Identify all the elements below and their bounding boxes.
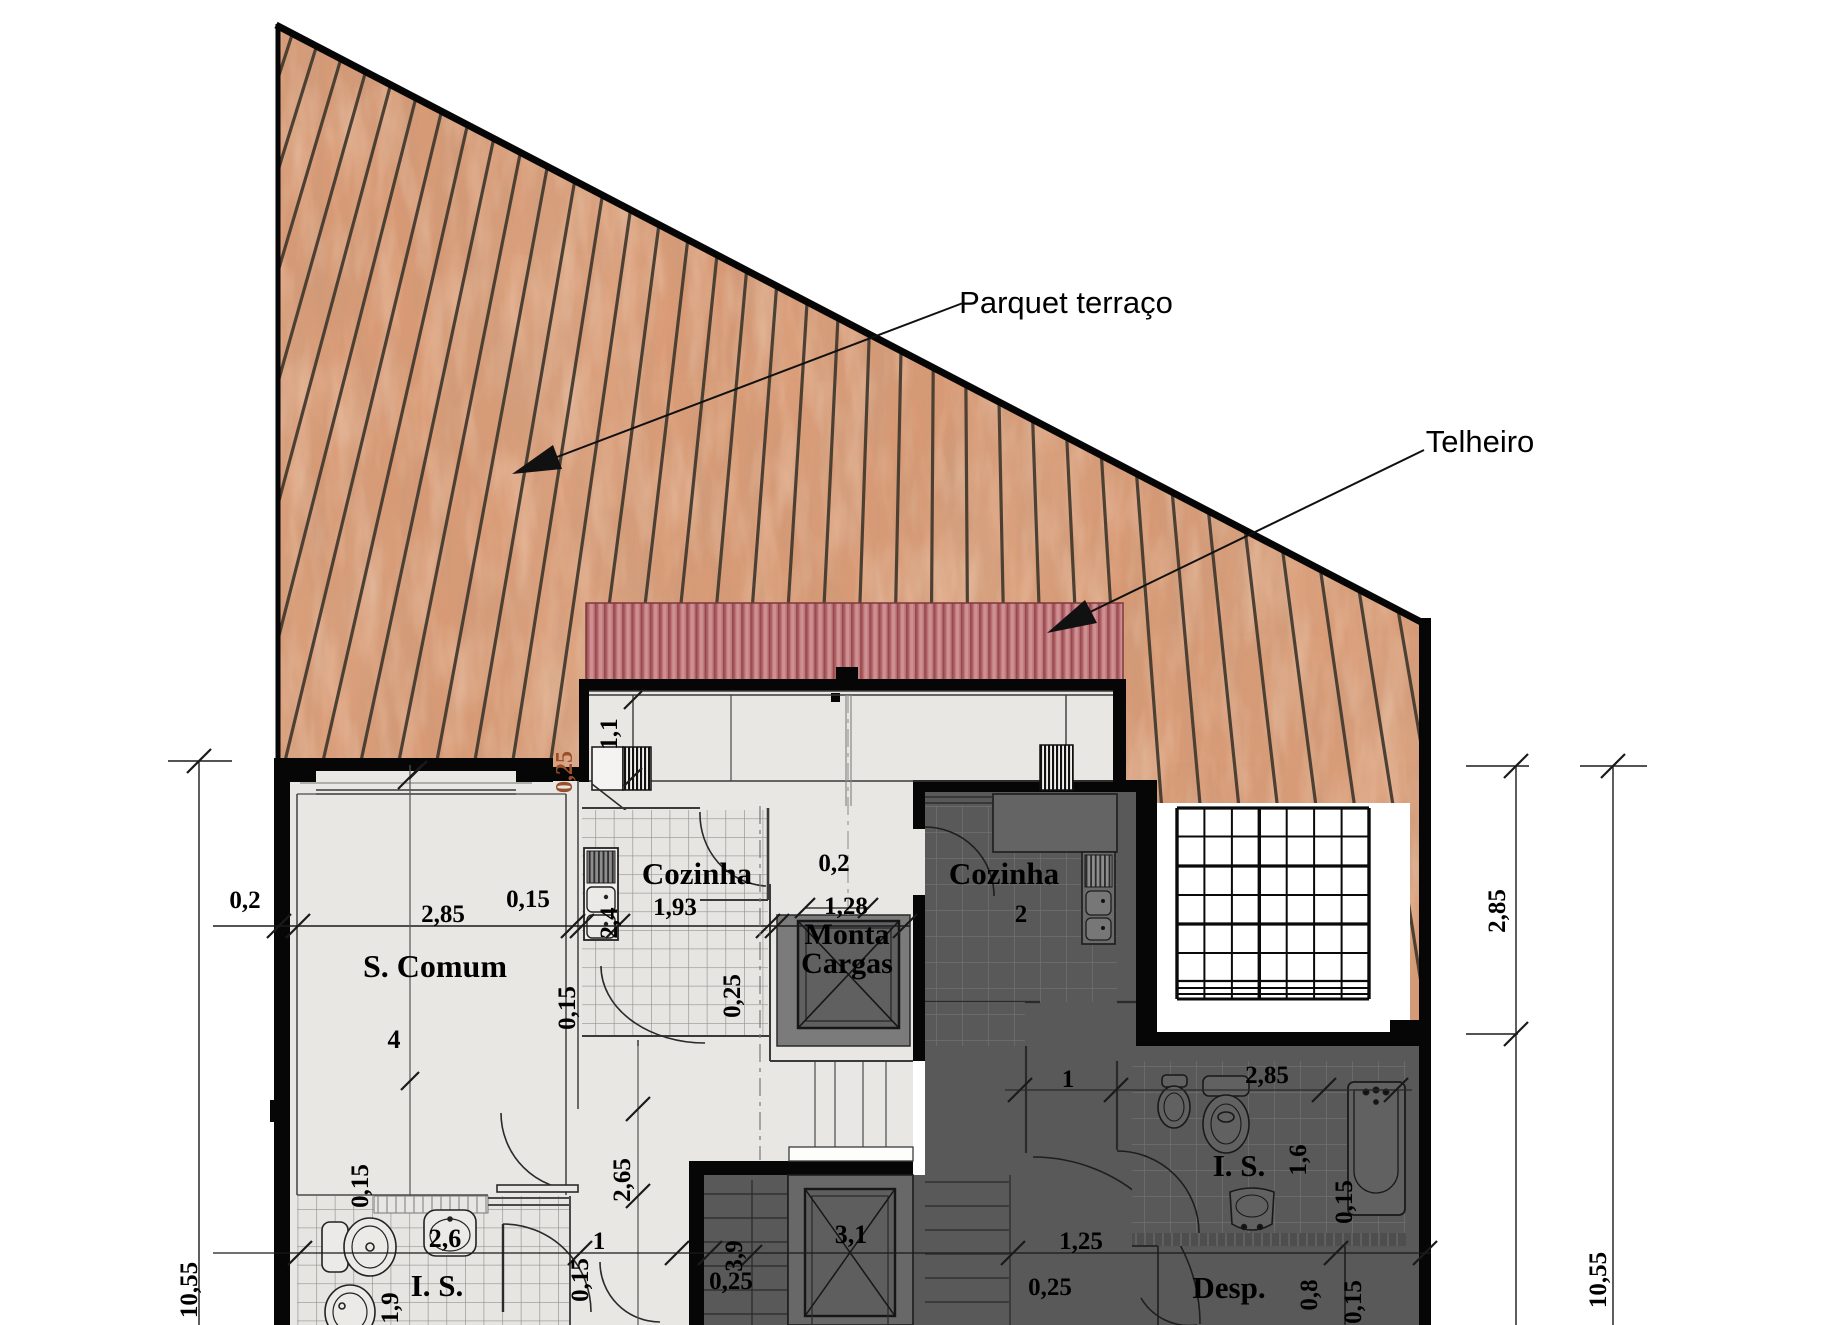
svg-text:Parquet terraço: Parquet terraço <box>959 285 1173 320</box>
svg-text:1: 1 <box>593 1228 606 1255</box>
svg-text:Desp.: Desp. <box>1192 1270 1265 1305</box>
svg-text:1,28: 1,28 <box>824 893 868 920</box>
svg-text:2: 2 <box>1015 901 1028 928</box>
svg-text:2,65: 2,65 <box>609 1158 636 1202</box>
svg-text:0,15: 0,15 <box>554 986 581 1030</box>
svg-text:3,9: 3,9 <box>721 1240 748 1271</box>
svg-text:2,85: 2,85 <box>421 901 465 928</box>
svg-text:0,25: 0,25 <box>552 751 578 793</box>
svg-text:10,55: 10,55 <box>176 1262 203 1318</box>
svg-text:1,1: 1,1 <box>596 718 623 749</box>
svg-text:1,6: 1,6 <box>1285 1144 1312 1175</box>
svg-text:0,15: 0,15 <box>347 1164 374 1208</box>
svg-text:0,15: 0,15 <box>1331 1180 1358 1224</box>
svg-text:2,6: 2,6 <box>429 1224 462 1253</box>
svg-text:2,4: 2,4 <box>596 907 623 939</box>
svg-text:1,93: 1,93 <box>653 894 697 921</box>
svg-text:Telheiro: Telheiro <box>1426 424 1535 459</box>
svg-text:0,15: 0,15 <box>567 1258 594 1302</box>
svg-text:1,9: 1,9 <box>377 1292 404 1323</box>
svg-text:1,25: 1,25 <box>1059 1228 1103 1255</box>
svg-text:0,15: 0,15 <box>506 886 550 913</box>
svg-text:S. Comum: S. Comum <box>363 948 507 984</box>
svg-text:0,8: 0,8 <box>1296 1279 1323 1310</box>
svg-text:0,2: 0,2 <box>818 850 849 877</box>
svg-text:Cozinha: Cozinha <box>642 856 753 891</box>
svg-text:1: 1 <box>1062 1066 1075 1093</box>
svg-text:0,25: 0,25 <box>719 974 746 1018</box>
svg-text:Cozinha: Cozinha <box>949 856 1060 891</box>
svg-text:0,25: 0,25 <box>709 1268 753 1295</box>
svg-text:10,55: 10,55 <box>1585 1252 1612 1308</box>
svg-text:Cargas: Cargas <box>801 947 893 980</box>
svg-text:4: 4 <box>388 1025 401 1054</box>
svg-text:3,1: 3,1 <box>835 1220 868 1249</box>
svg-text:2,85: 2,85 <box>1245 1062 1289 1089</box>
svg-text:0,2: 0,2 <box>229 887 260 914</box>
svg-text:2,85: 2,85 <box>1484 889 1511 933</box>
svg-text:I. S.: I. S. <box>411 1268 464 1303</box>
svg-text:0,15: 0,15 <box>1340 1280 1367 1324</box>
svg-text:I. S.: I. S. <box>1213 1148 1266 1183</box>
svg-text:0,25: 0,25 <box>1028 1274 1072 1301</box>
